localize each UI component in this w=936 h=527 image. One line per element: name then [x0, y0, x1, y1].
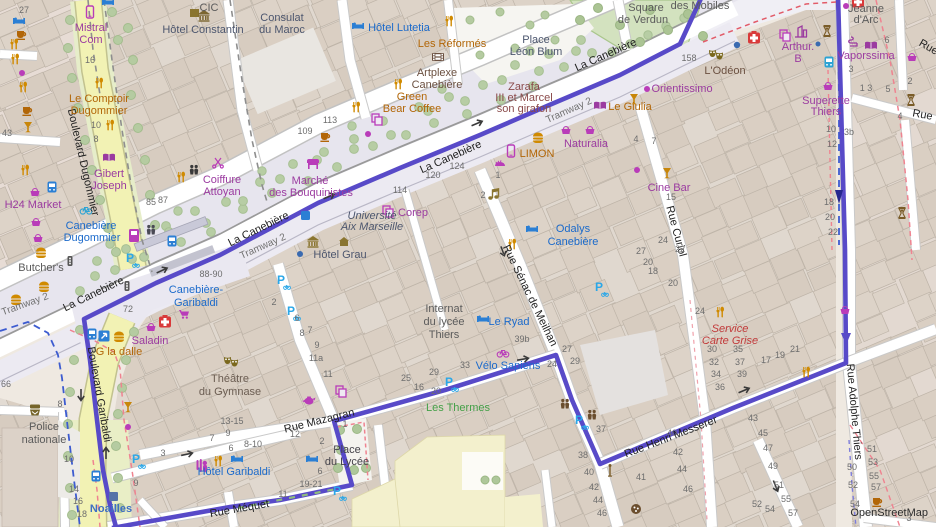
svg-text:Thiers: Thiers: [429, 329, 460, 341]
svg-text:Léon Blum: Léon Blum: [510, 46, 563, 58]
svg-text:6: 6: [884, 35, 889, 45]
svg-text:Le Ryad: Le Ryad: [489, 316, 530, 328]
svg-text:27: 27: [636, 246, 646, 256]
svg-text:Attoyan: Attoyan: [203, 186, 240, 198]
svg-text:du Gymnase: du Gymnase: [199, 386, 261, 398]
svg-text:3: 3: [906, 513, 911, 523]
svg-text:Dugommier: Dugommier: [71, 105, 128, 117]
svg-text:54: 54: [850, 499, 860, 509]
svg-text:Internat: Internat: [425, 303, 462, 315]
svg-text:Les Thermes: Les Thermes: [426, 402, 490, 414]
svg-text:Canebière: Canebière: [66, 220, 117, 232]
svg-text:Odalys: Odalys: [556, 223, 591, 235]
svg-text:Corep: Corep: [398, 207, 428, 219]
svg-text:57: 57: [788, 508, 798, 518]
svg-text:12: 12: [290, 429, 300, 439]
svg-text:42: 42: [673, 447, 683, 457]
svg-text:16: 16: [414, 382, 424, 392]
svg-text:Butcher's: Butcher's: [18, 262, 64, 274]
svg-text:H24 Market: H24 Market: [5, 199, 62, 211]
svg-text:9: 9: [133, 478, 138, 488]
svg-text:14: 14: [69, 484, 79, 494]
svg-text:P: P: [132, 452, 140, 466]
svg-text:52: 52: [752, 499, 762, 509]
svg-text:Garibaldi: Garibaldi: [174, 297, 218, 309]
svg-text:Les Réformés: Les Réformés: [418, 38, 487, 50]
svg-text:3: 3: [160, 448, 165, 458]
svg-text:G la dalle: G la dalle: [96, 346, 142, 358]
svg-text:2: 2: [319, 436, 324, 446]
svg-text:4: 4: [897, 111, 902, 121]
svg-text:46: 46: [683, 484, 693, 494]
svg-text:44: 44: [677, 464, 687, 474]
svg-text:16: 16: [85, 55, 95, 65]
svg-text:27: 27: [562, 344, 572, 354]
svg-text:P: P: [277, 273, 285, 287]
svg-text:Hôtel Lutetia: Hôtel Lutetia: [368, 22, 431, 34]
svg-text:1 3: 1 3: [860, 83, 873, 93]
svg-text:LIMON: LIMON: [520, 148, 555, 160]
svg-text:Coiffure: Coiffure: [203, 174, 241, 186]
svg-text:32: 32: [709, 357, 719, 367]
svg-text:Gibert: Gibert: [94, 168, 124, 180]
svg-text:d'Arc: d'Arc: [854, 14, 879, 26]
svg-text:6: 6: [317, 466, 322, 476]
svg-text:20: 20: [825, 212, 835, 222]
svg-text:120: 120: [425, 170, 440, 180]
svg-text:Com: Com: [79, 34, 102, 46]
svg-text:46: 46: [597, 508, 607, 518]
svg-text:Théâtre: Théâtre: [211, 373, 249, 385]
svg-text:45: 45: [758, 428, 768, 438]
svg-text:P: P: [126, 251, 134, 265]
svg-text:39b: 39b: [514, 334, 529, 344]
svg-text:20: 20: [643, 257, 653, 267]
svg-text:11a: 11a: [309, 353, 323, 363]
svg-text:OpenStreetMap: OpenStreetMap: [850, 507, 928, 519]
svg-text:P: P: [445, 375, 453, 389]
svg-text:24: 24: [658, 235, 668, 245]
svg-text:113: 113: [323, 115, 337, 125]
svg-text:34: 34: [711, 369, 721, 379]
svg-text:Hôtel Constantin: Hôtel Constantin: [162, 24, 243, 36]
svg-text:9: 9: [314, 340, 319, 350]
svg-text:P: P: [575, 413, 583, 427]
svg-text:42: 42: [589, 482, 599, 492]
svg-text:2: 2: [907, 76, 912, 86]
svg-text:Police: Police: [29, 421, 59, 433]
svg-text:Marché: Marché: [292, 175, 329, 187]
svg-text:Place: Place: [333, 444, 361, 456]
svg-text:7: 7: [209, 433, 214, 443]
svg-text:52: 52: [848, 480, 858, 490]
svg-text:8: 8: [93, 134, 98, 144]
svg-text:10: 10: [91, 120, 101, 130]
svg-text:22: 22: [675, 244, 685, 254]
svg-text:Vaporssima: Vaporssima: [837, 50, 895, 62]
svg-text:57: 57: [871, 482, 881, 492]
svg-text:66: 66: [1, 379, 11, 389]
svg-text:Bear Coffee: Bear Coffee: [383, 103, 442, 115]
svg-text:P: P: [595, 280, 603, 294]
svg-text:Dugommier: Dugommier: [64, 232, 121, 244]
svg-text:Canebière: Canebière: [412, 79, 463, 91]
svg-text:24: 24: [695, 306, 705, 316]
svg-text:Green: Green: [397, 91, 428, 103]
svg-text:35: 35: [733, 344, 743, 354]
svg-text:24: 24: [547, 359, 557, 369]
svg-text:15: 15: [666, 192, 676, 202]
svg-text:Orientissimo: Orientissimo: [651, 83, 712, 95]
svg-text:3: 3: [848, 64, 853, 74]
svg-text:19: 19: [775, 350, 785, 360]
svg-text:2: 2: [271, 297, 276, 307]
svg-text:Hôtel Garibaldi: Hôtel Garibaldi: [198, 466, 271, 478]
svg-text:Service: Service: [712, 323, 749, 335]
svg-text:L'Odéon: L'Odéon: [704, 65, 745, 77]
svg-text:37: 37: [596, 424, 606, 434]
svg-text:29: 29: [570, 356, 580, 366]
svg-text:47: 47: [763, 443, 773, 453]
svg-text:25: 25: [401, 373, 411, 383]
svg-text:114: 114: [393, 185, 407, 195]
svg-text:12: 12: [827, 139, 837, 149]
svg-text:17: 17: [761, 355, 771, 365]
svg-text:54: 54: [765, 504, 775, 514]
svg-text:CIC: CIC: [200, 2, 219, 14]
svg-text:Mistral: Mistral: [75, 22, 107, 34]
svg-text:27: 27: [19, 5, 29, 15]
svg-text:10: 10: [64, 454, 74, 464]
svg-text:9: 9: [225, 428, 230, 438]
svg-text:1: 1: [495, 170, 500, 180]
svg-text:11: 11: [278, 489, 287, 499]
svg-text:85: 85: [146, 197, 156, 207]
svg-text:Canebière-: Canebière-: [169, 284, 224, 296]
svg-text:Vélo Sapiens: Vélo Sapiens: [476, 360, 541, 372]
svg-text:Le Giulia: Le Giulia: [608, 101, 652, 113]
svg-text:55: 55: [869, 471, 879, 481]
svg-text:Thiers: Thiers: [811, 106, 842, 118]
svg-text:Canebière: Canebière: [548, 236, 599, 248]
svg-text:87: 87: [158, 195, 168, 205]
svg-text:55: 55: [781, 494, 791, 504]
svg-text:36: 36: [715, 382, 725, 392]
svg-text:B: B: [794, 53, 801, 65]
svg-text:1: 1: [342, 419, 347, 429]
svg-text:6: 6: [294, 313, 299, 323]
svg-text:22: 22: [828, 227, 838, 237]
svg-text:de Verdun: de Verdun: [618, 14, 668, 26]
svg-text:nationale: nationale: [22, 434, 67, 446]
svg-text:18: 18: [824, 197, 834, 207]
svg-text:Noailles: Noailles: [90, 503, 132, 515]
svg-text:du Lycée: du Lycée: [325, 456, 369, 468]
svg-text:30: 30: [707, 344, 717, 354]
svg-text:7: 7: [307, 325, 312, 335]
svg-text:des Bouquinistes: des Bouquinistes: [269, 187, 353, 199]
svg-text:109: 109: [297, 126, 312, 136]
svg-text:8: 8: [57, 399, 62, 409]
svg-text:Square: Square: [628, 2, 663, 14]
svg-text:6: 6: [228, 443, 233, 453]
svg-text:16: 16: [73, 496, 83, 506]
svg-text:21: 21: [790, 344, 800, 354]
svg-text:2: 2: [480, 190, 485, 200]
svg-text:du Maroc: du Maroc: [259, 24, 305, 36]
svg-text:du lycée: du lycée: [424, 316, 465, 328]
svg-text:29: 29: [429, 367, 439, 377]
svg-text:P: P: [333, 484, 341, 498]
svg-text:51: 51: [867, 444, 877, 454]
svg-text:72: 72: [123, 304, 133, 314]
svg-text:43: 43: [748, 413, 758, 423]
svg-text:8: 8: [299, 328, 304, 338]
svg-text:44: 44: [593, 495, 603, 505]
svg-text:18: 18: [77, 509, 87, 519]
svg-text:Consulat: Consulat: [260, 12, 303, 24]
svg-text:Hôtel Grau: Hôtel Grau: [313, 249, 366, 261]
svg-text:38: 38: [578, 450, 588, 460]
svg-text:son girafon: son girafon: [497, 103, 551, 115]
svg-text:20: 20: [668, 278, 678, 288]
svg-text:13-15: 13-15: [220, 416, 243, 426]
svg-text:Aix Marseille: Aix Marseille: [340, 221, 403, 233]
svg-text:88-90: 88-90: [199, 269, 222, 279]
svg-text:10: 10: [826, 124, 836, 134]
svg-text:Joseph: Joseph: [91, 180, 126, 192]
svg-text:Naturalia: Naturalia: [564, 138, 609, 150]
svg-text:3b: 3b: [844, 127, 854, 137]
svg-text:Arthur.: Arthur.: [782, 41, 814, 53]
svg-text:37: 37: [735, 357, 745, 367]
svg-text:11: 11: [323, 369, 332, 379]
svg-text:5: 5: [885, 84, 890, 94]
svg-text:53: 53: [868, 457, 878, 467]
svg-text:33: 33: [460, 360, 470, 370]
svg-text:41: 41: [636, 472, 646, 482]
svg-text:des Mobiles: des Mobiles: [671, 0, 730, 12]
svg-text:Le Comptoir: Le Comptoir: [69, 93, 129, 105]
svg-text:49: 49: [768, 461, 778, 471]
svg-text:18: 18: [648, 266, 658, 276]
svg-text:43: 43: [2, 128, 12, 138]
svg-text:158: 158: [681, 53, 696, 63]
svg-text:51: 51: [774, 480, 784, 490]
svg-text:40: 40: [584, 467, 594, 477]
svg-text:20: 20: [431, 386, 441, 396]
svg-text:Place: Place: [522, 34, 550, 46]
svg-text:4: 4: [633, 134, 638, 144]
svg-text:Artplexe: Artplexe: [417, 67, 457, 79]
svg-text:19-21: 19-21: [299, 479, 322, 489]
svg-text:40: 40: [667, 428, 677, 438]
svg-text:39: 39: [737, 369, 747, 379]
svg-text:50: 50: [847, 462, 857, 472]
svg-text:7: 7: [651, 136, 656, 146]
svg-text:124: 124: [449, 161, 464, 171]
svg-text:8-10: 8-10: [244, 439, 262, 449]
